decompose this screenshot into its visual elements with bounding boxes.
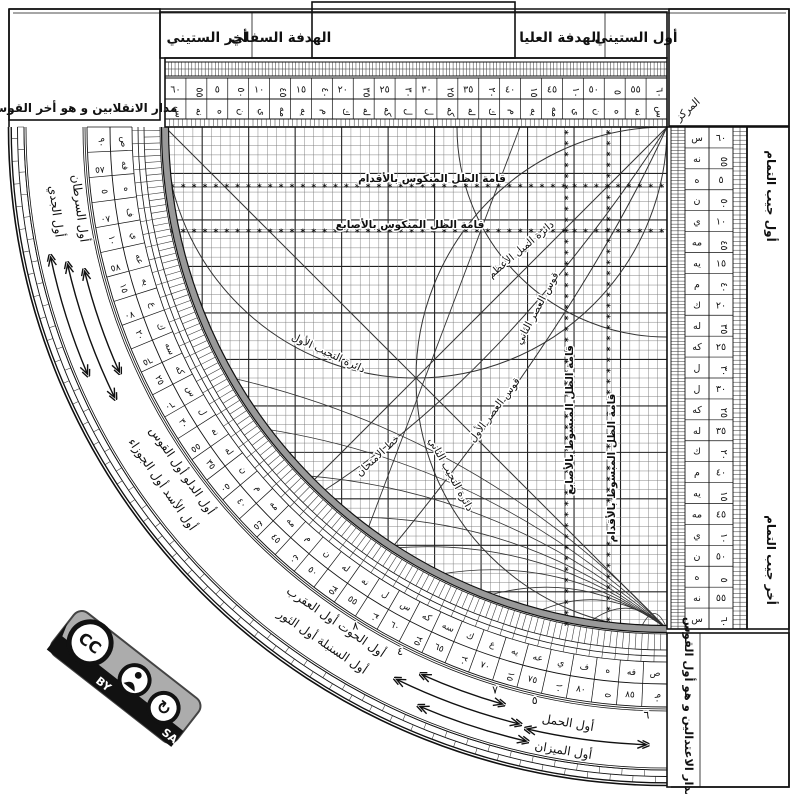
ring-tick — [193, 340, 208, 347]
ring-tick — [256, 441, 269, 451]
arc-cell-letter: نه — [208, 426, 220, 438]
right-cell-letter: ل — [694, 363, 701, 374]
ring-tick — [268, 455, 280, 465]
ring-tick — [310, 672, 314, 677]
right-cell-number: ٢٠ — [716, 300, 726, 311]
ring-tick — [542, 765, 543, 771]
ring-tick — [169, 318, 180, 322]
ring-tick — [169, 540, 174, 544]
top-cell-letter: ه — [612, 110, 623, 115]
arc-cell-number: ٧٠ — [479, 660, 491, 673]
ring-tick — [239, 440, 249, 447]
ring-tick — [203, 387, 213, 393]
top-cell-number: ٤٥ — [277, 87, 288, 97]
ring-tick — [285, 647, 289, 652]
top-cell-number: ٣٠ — [403, 87, 414, 97]
ring-tick — [346, 528, 356, 541]
ring-tick — [83, 409, 89, 412]
ring-tick — [547, 620, 551, 636]
ring-tick — [72, 401, 78, 404]
label-upper-sight: الهدفة العليا — [519, 30, 601, 46]
top-cell-number: ٦٠ — [170, 85, 180, 96]
top-cell-letter: ن — [591, 109, 602, 116]
ring-tick — [260, 445, 272, 455]
top-cell-letter: مه — [549, 107, 560, 117]
arc-cell-number: ٢٠ — [133, 329, 146, 342]
ring-tick — [145, 155, 161, 156]
ring-tick — [133, 156, 145, 157]
top-cell-number: ٥٠ — [589, 85, 599, 96]
ring-tick — [155, 523, 160, 527]
top-cell-number: ٤٥ — [547, 85, 557, 96]
ring-tick — [55, 360, 61, 362]
ring-tick — [82, 422, 88, 425]
ring-tick — [145, 161, 161, 162]
ring-tick — [43, 304, 49, 306]
ring-tick — [433, 580, 440, 594]
ring-tick — [309, 516, 317, 525]
arc-cell-letter: م — [252, 483, 263, 494]
arc-cell-letter: ي — [556, 658, 565, 669]
ring-tick — [411, 725, 414, 731]
right-cell-number: ٥٥ — [718, 157, 729, 167]
ring-tick — [226, 400, 239, 409]
top-cell-number: ١٠ — [254, 85, 264, 96]
ring-tick — [486, 603, 492, 618]
right-cell-letter: ي — [693, 217, 700, 228]
right-cell-number: ٣٠ — [716, 384, 726, 395]
ring-tick — [510, 751, 512, 757]
arc-cell-number: ٥ — [602, 692, 612, 698]
ring-tick — [405, 566, 413, 580]
ring-tick — [248, 431, 261, 441]
zodiac-label: أول الجدي — [45, 185, 68, 239]
right-cell-letter: له — [693, 426, 701, 437]
top-cell-letter: له — [465, 108, 476, 116]
ring-tick — [497, 754, 499, 760]
right-cell-number: ٤٥ — [718, 240, 729, 250]
ring-tick — [564, 769, 565, 775]
ring-tick — [213, 379, 227, 387]
right-cell-number: ٥ — [718, 175, 723, 186]
arc-cell-number: ٢٥ — [152, 374, 165, 387]
right-cell-letter: يه — [693, 258, 701, 269]
arc-cell-letter: ص — [118, 136, 128, 147]
top-cell-number: ٣٠ — [421, 85, 431, 96]
arc-cell-letter: ص — [650, 669, 661, 679]
ring-tick — [148, 192, 164, 194]
right-cell-number: ٤٠ — [718, 282, 729, 292]
ring-tick — [498, 607, 503, 622]
ring-tick — [263, 470, 272, 478]
ring-tick — [144, 143, 160, 144]
ring-tick — [241, 421, 254, 430]
ring-tick — [439, 583, 446, 597]
ring-tick — [190, 364, 201, 369]
ring-tick — [322, 508, 333, 520]
ring-tick — [143, 518, 148, 522]
arc-cell-number: ٦٥ — [432, 642, 445, 655]
arc-cell-letter: مه — [267, 499, 281, 513]
ring-tick — [342, 684, 345, 690]
arc-cell-letter: ف — [124, 207, 135, 218]
ring-tick — [23, 251, 29, 252]
arc-cell-number: ٧٥ — [526, 674, 538, 686]
ring-tick — [519, 760, 520, 766]
ring-tick — [93, 442, 99, 445]
ring-tick — [148, 186, 164, 188]
ring-tick — [149, 198, 165, 200]
ring-tick — [174, 330, 185, 335]
top-cell-letter: ن — [235, 109, 246, 116]
ring-tick — [522, 614, 526, 629]
ring-tick — [367, 542, 376, 555]
ring-tick — [329, 684, 332, 690]
arc-cell-number: ١٥ — [117, 282, 129, 294]
ring-tick — [176, 300, 191, 305]
ring-tick — [403, 714, 406, 720]
ring-tick — [341, 524, 351, 537]
ring-tick — [220, 602, 224, 607]
top-cell-number: ٣٥ — [463, 85, 473, 96]
zodiac-arrow-arc — [421, 707, 526, 741]
top-cell-letter: كه — [382, 107, 393, 117]
arc-cell-number: ٥٠ — [218, 480, 232, 494]
top-cell-number: ٥٥ — [631, 85, 641, 96]
ring-tick — [350, 548, 357, 558]
arc-cell-number: ٩٠ — [96, 137, 106, 147]
label-equinox-orbit: مدار الاعتدالين و هو أول القوس — [681, 617, 697, 794]
ring-tick — [298, 487, 309, 498]
ring-tick — [247, 450, 256, 457]
right-cell-number: ٥٠ — [718, 199, 729, 209]
top-cell-letter: له — [361, 108, 372, 116]
ring-tick — [216, 409, 226, 415]
top-cell-number: ٥٥ — [193, 87, 204, 97]
ring-tick — [116, 468, 122, 471]
ring-tick — [534, 617, 538, 632]
ring-tick — [394, 559, 402, 573]
ring-tick — [369, 706, 372, 712]
ring-tick — [237, 617, 241, 622]
ring-tick — [237, 416, 250, 425]
ring-tick — [24, 216, 30, 217]
arc-cell-letter: ن — [321, 548, 332, 560]
top-cell-number: ٢٥ — [380, 85, 390, 96]
arc-cell-letter: كه — [420, 611, 433, 624]
top-cell-number: ٤٠ — [319, 87, 330, 97]
ring-tick — [382, 705, 385, 711]
ring-tick — [173, 295, 188, 300]
right-cell-number: ٥ — [718, 578, 729, 583]
ring-tick — [587, 772, 588, 778]
ring-tick — [393, 576, 399, 586]
arc-cell-letter: ع — [488, 640, 497, 651]
ring-tick — [294, 482, 305, 493]
top-cell-letter: مه — [277, 107, 288, 117]
label-second-asr-arc: قوس العصر الثاني — [513, 270, 561, 346]
ring-tick — [244, 426, 257, 435]
arc-cell-letter: ي — [128, 232, 139, 241]
right-cell-letter: له — [693, 321, 701, 332]
arc-cell-number: ٤٠ — [287, 552, 301, 566]
ring-tick — [584, 628, 587, 644]
ring-tick — [462, 593, 468, 608]
ring-tick — [195, 346, 209, 353]
right-cell-number: ١٠ — [716, 217, 726, 228]
top-cell-letter: ي — [570, 108, 581, 115]
top-cell-number: ١٠ — [570, 87, 581, 97]
arc-cell-number: ٤٥ — [268, 532, 282, 546]
ring-tick — [233, 411, 246, 420]
ring-tick — [117, 481, 122, 485]
ring-tick — [427, 578, 434, 592]
right-cell-number: ٢٠ — [718, 450, 729, 460]
ring-tick — [327, 512, 337, 524]
quadrant-drawing: ****************************************… — [0, 0, 794, 794]
top-cell-letter: ه — [214, 110, 225, 115]
ring-tick — [129, 487, 134, 491]
shadow-dotted-line: ****************************************… — [601, 130, 611, 622]
top-cell-number: ١٥ — [528, 87, 539, 97]
ring-tick — [159, 247, 175, 251]
ring-tick — [474, 598, 480, 613]
ring-tick — [40, 317, 46, 319]
arc-cell-letter: كه — [173, 364, 186, 377]
ring-tick — [572, 626, 575, 642]
arc-cell-number: ٨٠ — [575, 684, 586, 695]
ring-tick — [203, 586, 208, 591]
sine-quadrant-sheet: { "title": "الربع المجيب", "top_band": {… — [0, 0, 794, 794]
ring-tick — [382, 570, 388, 580]
ring-tick — [339, 540, 346, 549]
ring-tick — [357, 535, 366, 548]
ring-tick — [492, 605, 497, 620]
right-cell-letter: ن — [694, 551, 701, 562]
ring-tick — [150, 205, 166, 207]
ring-tick — [57, 347, 63, 349]
ring-tick — [404, 583, 410, 593]
ring-tick — [510, 611, 515, 626]
arc-cell-letter: م — [303, 533, 314, 544]
hour-number: ٤ — [397, 645, 403, 658]
ring-tick — [540, 619, 544, 635]
ring-tick — [232, 605, 236, 610]
ring-tick — [152, 217, 168, 220]
ring-tick — [37, 283, 43, 285]
label-extended-shadow-feet: قامة الظل المبسوط بالأقدام — [605, 393, 618, 542]
ring-tick — [312, 500, 323, 512]
cell-divider — [88, 150, 133, 152]
ring-tick — [172, 553, 177, 557]
right-cell-number: ١٠ — [718, 533, 729, 543]
zodiac-arrow-arc — [85, 272, 119, 371]
ring-tick — [272, 646, 276, 651]
ring-tick — [388, 556, 397, 570]
arc-cell-number: ٣٠ — [176, 417, 190, 430]
ring-tick — [63, 381, 69, 384]
top-cell-letter: س — [654, 106, 665, 118]
ring-tick — [463, 611, 468, 622]
top-cell-number: ٣٥ — [361, 87, 372, 97]
right-cell-number: ٤٥ — [716, 509, 726, 520]
ring-tick — [151, 211, 167, 214]
ring-tick — [164, 306, 175, 310]
ring-tick — [362, 695, 365, 701]
ring-tick — [146, 168, 162, 169]
arc-cell-letter: له — [339, 562, 351, 575]
label-inverted-shadow-feet: قامة الظل المنكوس بالأقدام — [358, 172, 506, 185]
right-cell-letter: س — [691, 133, 703, 144]
right-cell-letter: نه — [693, 593, 701, 604]
ring-tick — [187, 570, 192, 574]
right-cell-number: ٣٥ — [718, 324, 729, 334]
ring-tick — [532, 756, 533, 762]
arc-cell-letter: ل — [196, 407, 208, 418]
label-cosine-first: أول جيب التمام — [763, 150, 779, 241]
top-cell-letter: ل — [423, 109, 434, 116]
ring-tick — [303, 491, 314, 502]
ring-tick — [220, 390, 234, 398]
right-cell-letter: ي — [693, 530, 700, 541]
ring-tick — [610, 774, 611, 780]
top-cell-letter: كه — [444, 107, 455, 117]
ring-tick — [648, 634, 649, 650]
ring-tick — [267, 634, 271, 639]
ring-tick — [255, 460, 264, 468]
ring-tick — [291, 659, 295, 664]
ring-tick — [390, 716, 393, 722]
hour-number: ٥ — [532, 694, 538, 707]
arc-cell-letter: س — [183, 384, 197, 398]
arc-cell-number: ٥٥ — [188, 441, 202, 455]
ring-tick — [432, 733, 434, 739]
ring-tick — [466, 739, 468, 745]
right-cell-number: ٥٥ — [716, 593, 726, 604]
arc-cell-number: ٩٠ — [651, 693, 661, 703]
ring-tick — [349, 695, 352, 701]
ring-tick — [578, 627, 581, 643]
ring-tick — [209, 398, 219, 404]
ring-tick — [641, 633, 642, 649]
ring-tick — [591, 629, 593, 645]
top-cell-letter: يه — [528, 108, 539, 116]
ring-tick — [185, 323, 200, 329]
arc-cell-letter: له — [222, 446, 235, 458]
ring-tick — [162, 259, 177, 263]
ring-tick — [475, 748, 477, 754]
arc-cell-number: ٥ — [99, 189, 109, 195]
ring-tick — [597, 629, 599, 645]
ring-tick — [622, 632, 623, 648]
ring-tick — [231, 430, 241, 437]
ring-tick — [47, 338, 53, 340]
ring-tick — [144, 149, 160, 150]
arc-cell-letter: ه — [605, 666, 611, 676]
ring-tick — [610, 631, 612, 647]
ring-tick — [553, 622, 556, 638]
ring-tick — [216, 384, 230, 392]
hour-number: ٨ — [352, 620, 358, 633]
right-cell-number: ٣٥ — [716, 426, 726, 437]
arc-cell-number: ٦٠ — [163, 398, 176, 411]
ring-tick — [362, 539, 371, 552]
ring-tick — [577, 764, 578, 770]
arc-cell-number: ٨٠ — [100, 213, 111, 224]
top-cell-letter: ي — [256, 108, 267, 115]
label-second-tajyib-circle: دائرة التجيب الثاني — [425, 436, 475, 514]
ring-tick — [277, 464, 289, 475]
ring-tick — [603, 630, 605, 646]
arc-cell-number: ٣٥ — [203, 458, 217, 472]
arc-cell-letter: عه — [133, 253, 145, 265]
ring-tick — [424, 723, 426, 729]
right-cell-number: ١٥ — [718, 491, 729, 501]
arc-cell-number: ١٥ — [504, 670, 516, 682]
right-cell-number: ٦٠ — [716, 133, 726, 144]
ring-tick — [223, 395, 237, 403]
ring-tick — [528, 616, 532, 631]
arc-cell-number: ٧٥ — [109, 261, 121, 273]
ring-tick — [285, 473, 297, 484]
ring-tick — [216, 590, 221, 595]
arc-cell-letter: ل — [379, 589, 390, 601]
sight-tab — [312, 2, 515, 58]
arc-cell-number: ١٠ — [552, 682, 564, 693]
top-cell-letter: نه — [633, 108, 644, 116]
ring-tick — [475, 615, 479, 626]
ring-tick — [378, 549, 387, 562]
ring-tick — [49, 326, 55, 328]
ring-tick — [290, 478, 302, 489]
ring-tick — [399, 562, 407, 576]
arc-cell-number: ٦٥ — [141, 354, 154, 367]
right-cell-letter: نه — [693, 154, 701, 165]
ring-tick — [445, 731, 447, 737]
right-cell-number: ٥٠ — [716, 551, 726, 562]
arc-cell-number: ٦٠ — [388, 620, 401, 633]
ring-tick — [210, 374, 224, 382]
ring-tick — [166, 271, 181, 276]
ring-tick — [410, 569, 418, 583]
ring-tick — [372, 546, 381, 559]
ring-tick — [629, 633, 630, 649]
ring-tick — [28, 273, 34, 274]
top-cell-letter: ك — [340, 108, 351, 116]
arc-cell-number: ٧٠ — [123, 308, 135, 321]
right-cell-letter: مه — [692, 509, 702, 520]
arc-cell-number: ٣٥ — [325, 583, 339, 597]
ring-tick — [105, 449, 111, 452]
ring-tick — [444, 586, 451, 600]
hour-number: ٧ — [492, 683, 498, 696]
right-cell-letter: ن — [694, 196, 701, 207]
ring-tick — [641, 649, 642, 661]
ring-tick — [252, 436, 265, 446]
top-cell-letter: ل — [403, 109, 414, 116]
cell-divider — [642, 661, 644, 706]
ring-tick — [319, 524, 327, 533]
arc-cell-letter: ك — [154, 322, 166, 333]
arc-cell-letter: س — [398, 600, 412, 614]
top-cell-number: ٥٠ — [235, 87, 246, 97]
top-cell-number: ٥ — [215, 85, 220, 96]
top-cell-letter: نه — [193, 108, 204, 116]
ring-tick — [383, 553, 392, 566]
top-cell-number: ٢٠ — [338, 85, 348, 96]
arc-cell-letter: يه — [510, 646, 520, 658]
ring-tick — [272, 460, 284, 470]
